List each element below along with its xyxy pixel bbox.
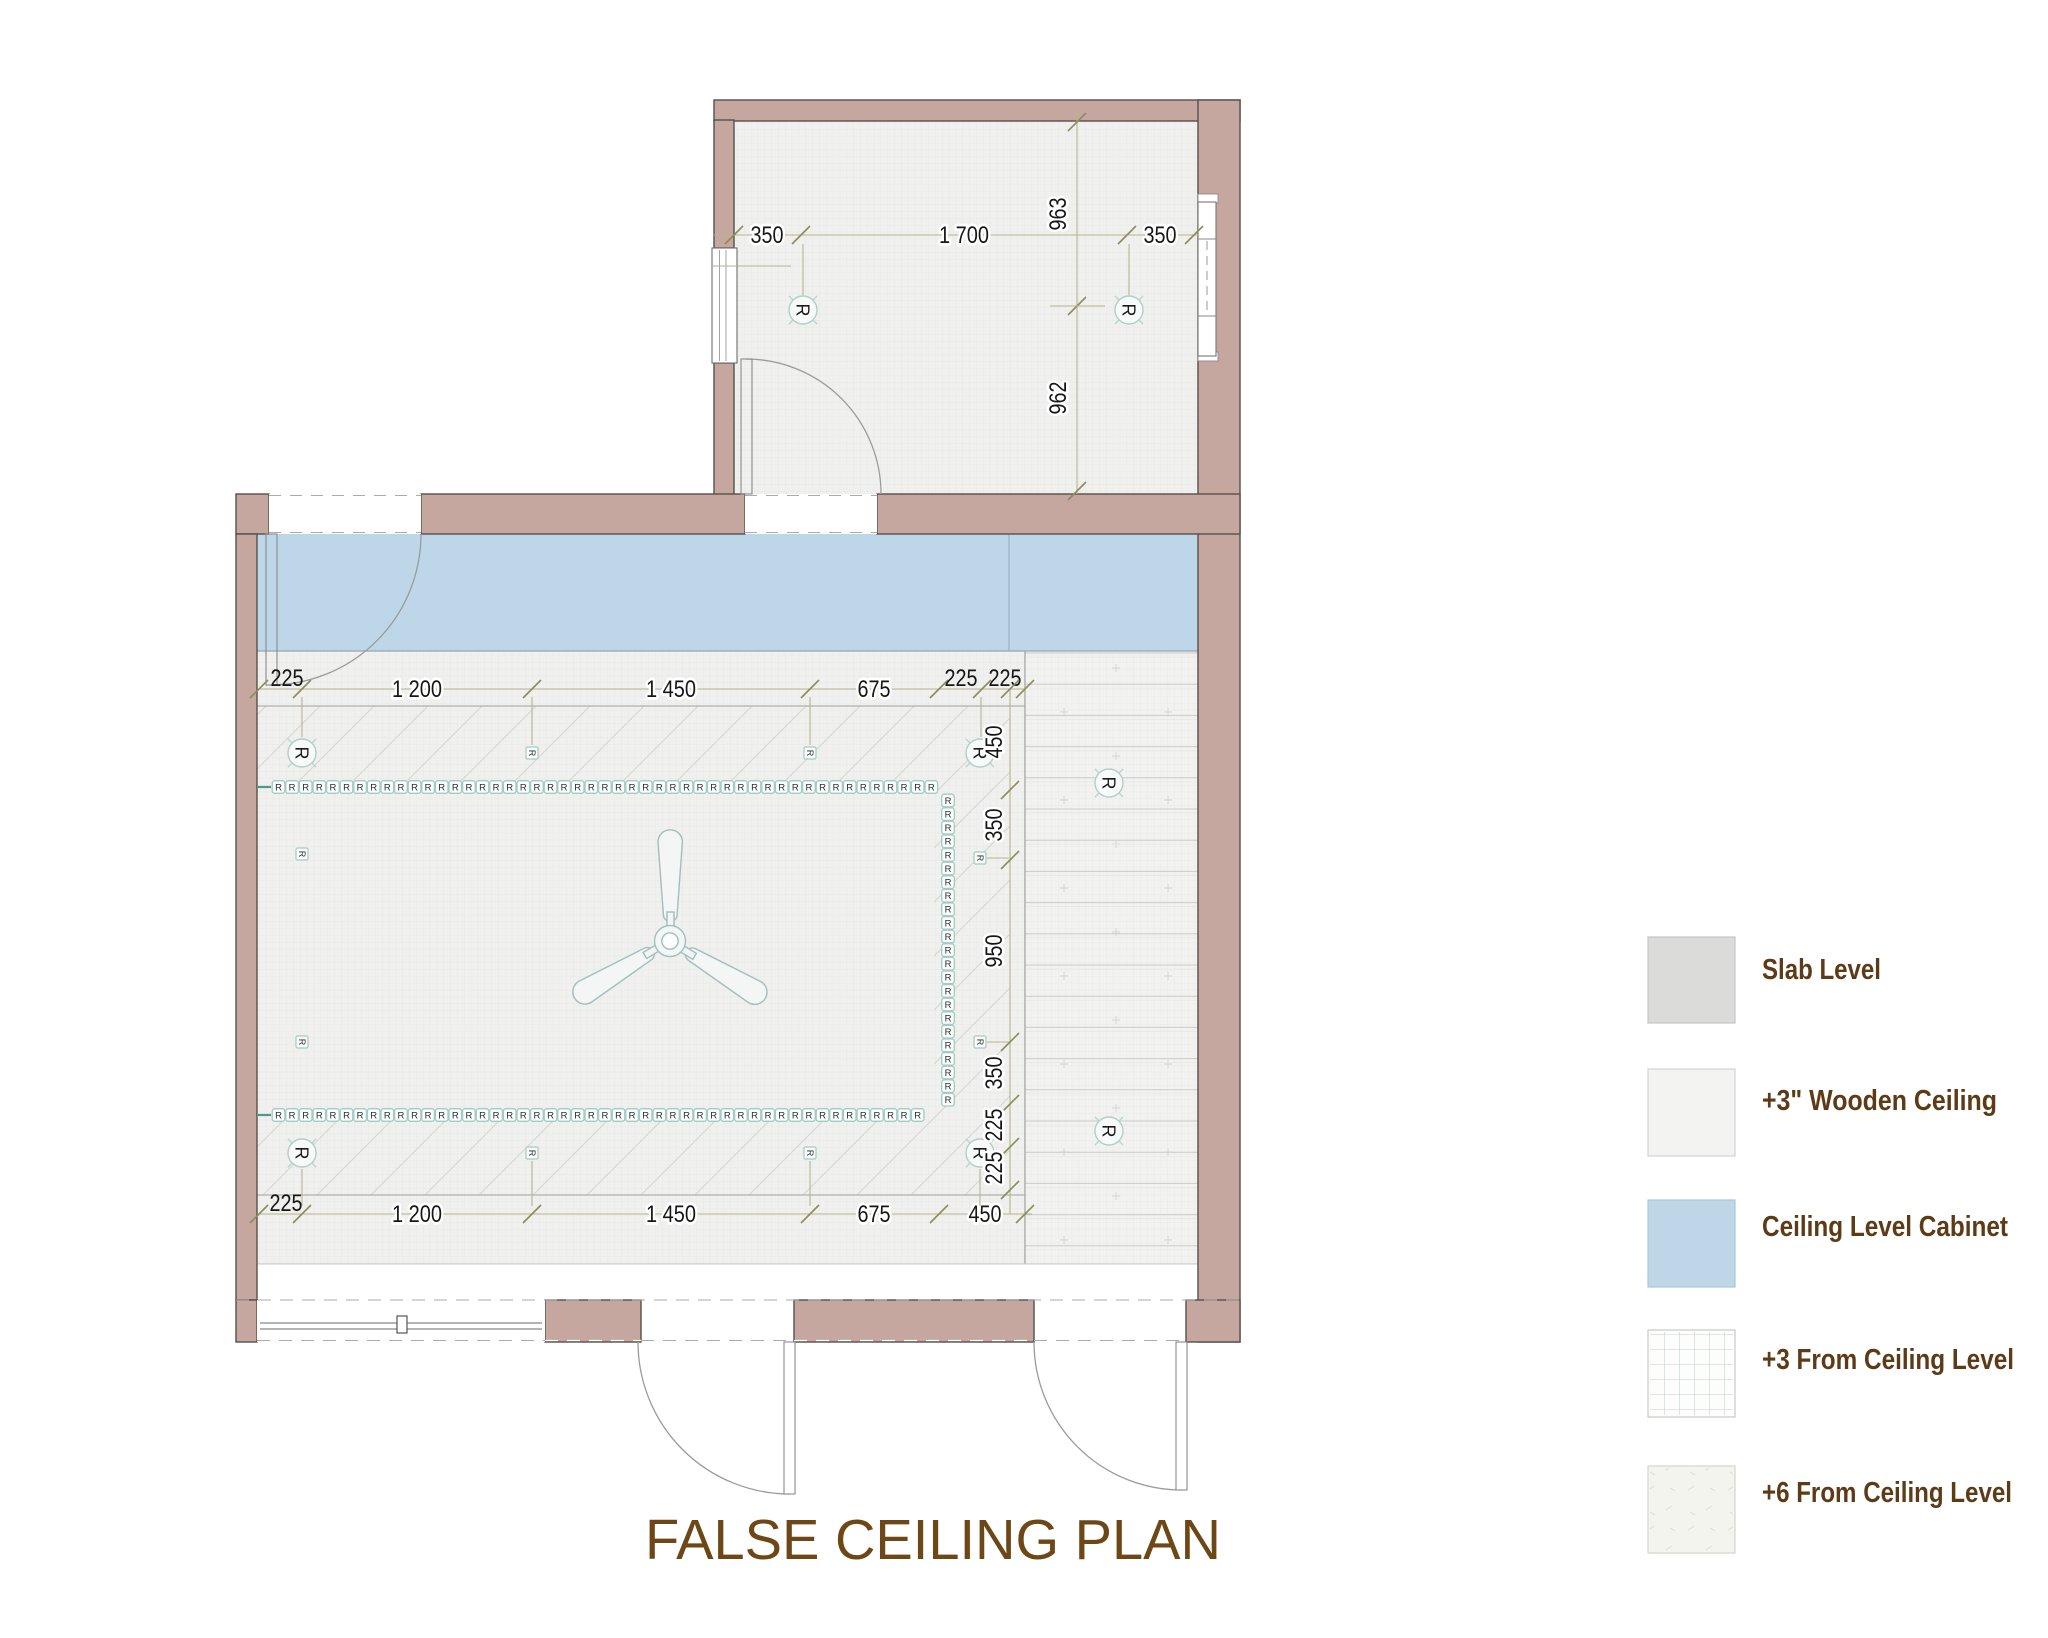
svg-text:R: R: [873, 1110, 880, 1121]
svg-text:R: R: [289, 1110, 296, 1121]
svg-text:Slab Level: Slab Level: [1762, 954, 1881, 986]
svg-text:R: R: [833, 1110, 840, 1121]
svg-text:225: 225: [945, 665, 978, 692]
svg-text:R: R: [574, 782, 581, 793]
svg-text:R: R: [292, 1147, 312, 1160]
svg-text:R: R: [975, 855, 985, 862]
svg-text:225: 225: [270, 1190, 303, 1217]
svg-text:R: R: [438, 782, 445, 793]
svg-text:R: R: [945, 837, 952, 848]
svg-text:R: R: [860, 782, 867, 793]
svg-text:R: R: [527, 1150, 537, 1157]
svg-text:R: R: [1099, 777, 1119, 790]
svg-text:350: 350: [751, 222, 784, 249]
svg-text:R: R: [945, 946, 952, 957]
svg-text:R: R: [384, 1110, 391, 1121]
svg-text:R: R: [945, 1082, 952, 1093]
svg-text:R: R: [527, 750, 537, 757]
svg-text:1 200: 1 200: [392, 1201, 442, 1228]
svg-text:675: 675: [858, 1201, 891, 1228]
svg-text:Ceiling Level Cabinet: Ceiling Level Cabinet: [1762, 1211, 2008, 1243]
svg-text:R: R: [629, 1110, 636, 1121]
svg-text:R: R: [370, 1110, 377, 1121]
svg-text:R: R: [805, 1110, 812, 1121]
svg-text:R: R: [945, 850, 952, 861]
svg-text:R: R: [778, 782, 785, 793]
svg-text:R: R: [1119, 304, 1139, 317]
svg-text:R: R: [425, 1110, 432, 1121]
svg-text:R: R: [642, 782, 649, 793]
svg-text:R: R: [561, 782, 568, 793]
svg-text:R: R: [914, 1110, 921, 1121]
svg-text:R: R: [710, 1110, 717, 1121]
svg-text:R: R: [737, 782, 744, 793]
svg-text:R: R: [846, 1110, 853, 1121]
svg-text:950: 950: [981, 935, 1008, 968]
svg-text:R: R: [846, 782, 853, 793]
svg-text:R: R: [887, 1110, 894, 1121]
svg-text:R: R: [615, 782, 622, 793]
svg-text:R: R: [297, 1039, 307, 1046]
svg-text:225: 225: [981, 1109, 1008, 1142]
svg-text:R: R: [493, 1110, 500, 1121]
svg-text:R: R: [887, 782, 894, 793]
svg-text:R: R: [901, 1110, 908, 1121]
svg-text:1 200: 1 200: [392, 676, 442, 703]
svg-text:R: R: [465, 782, 472, 793]
svg-text:R: R: [697, 1110, 704, 1121]
svg-text:R: R: [329, 782, 336, 793]
svg-text:R: R: [411, 782, 418, 793]
svg-text:R: R: [506, 1110, 513, 1121]
svg-text:R: R: [533, 1110, 540, 1121]
svg-text:R: R: [357, 782, 364, 793]
svg-text:FALSE CEILING PLAN: FALSE CEILING PLAN: [645, 1508, 1221, 1572]
svg-text:R: R: [520, 782, 527, 793]
svg-text:R: R: [533, 782, 540, 793]
svg-text:R: R: [601, 782, 608, 793]
svg-text:R: R: [601, 1110, 608, 1121]
svg-text:350: 350: [1144, 222, 1177, 249]
svg-text:675: 675: [858, 676, 891, 703]
svg-text:R: R: [1099, 1125, 1119, 1138]
svg-text:R: R: [588, 782, 595, 793]
svg-text:R: R: [642, 1110, 649, 1121]
svg-text:R: R: [945, 823, 952, 834]
svg-text:R: R: [945, 796, 952, 807]
svg-text:R: R: [945, 864, 952, 875]
svg-text:R: R: [945, 1041, 952, 1052]
svg-text:R: R: [945, 959, 952, 970]
svg-text:R: R: [357, 1110, 364, 1121]
svg-text:R: R: [275, 782, 282, 793]
svg-text:R: R: [724, 1110, 731, 1121]
svg-text:R: R: [506, 782, 513, 793]
svg-text:R: R: [901, 782, 908, 793]
svg-text:R: R: [697, 782, 704, 793]
svg-text:R: R: [574, 1110, 581, 1121]
svg-text:R: R: [819, 782, 826, 793]
svg-text:R: R: [945, 986, 952, 997]
svg-text:1 450: 1 450: [646, 1201, 696, 1228]
svg-text:R: R: [792, 782, 799, 793]
svg-text:1 450: 1 450: [646, 676, 696, 703]
svg-text:R: R: [316, 782, 323, 793]
svg-text:R: R: [945, 1000, 952, 1011]
svg-text:R: R: [805, 1150, 815, 1157]
svg-text:R: R: [833, 782, 840, 793]
svg-text:R: R: [805, 750, 815, 757]
svg-text:+3 From Ceiling Level: +3 From Ceiling Level: [1762, 1344, 2014, 1376]
svg-text:R: R: [945, 1095, 952, 1106]
svg-text:R: R: [945, 891, 952, 902]
svg-text:R: R: [819, 1110, 826, 1121]
svg-text:+3" Wooden Ceiling: +3" Wooden Ceiling: [1762, 1085, 1997, 1117]
svg-text:R: R: [656, 1110, 663, 1121]
svg-text:R: R: [384, 782, 391, 793]
svg-text:R: R: [710, 782, 717, 793]
svg-text:R: R: [629, 782, 636, 793]
svg-text:R: R: [302, 782, 309, 793]
svg-text:R: R: [656, 782, 663, 793]
svg-text:R: R: [465, 1110, 472, 1121]
svg-text:1 700: 1 700: [939, 222, 989, 249]
svg-text:R: R: [765, 782, 772, 793]
svg-text:R: R: [452, 782, 459, 793]
svg-text:R: R: [945, 878, 952, 889]
svg-text:R: R: [275, 1110, 282, 1121]
svg-text:R: R: [737, 1110, 744, 1121]
svg-text:R: R: [793, 304, 813, 317]
svg-text:R: R: [683, 1110, 690, 1121]
svg-text:R: R: [289, 782, 296, 793]
svg-text:R: R: [765, 1110, 772, 1121]
svg-text:R: R: [297, 851, 307, 858]
svg-text:R: R: [370, 782, 377, 793]
svg-text:R: R: [751, 782, 758, 793]
svg-text:350: 350: [981, 809, 1008, 842]
svg-text:R: R: [302, 1110, 309, 1121]
svg-text:R: R: [343, 782, 350, 793]
svg-text:R: R: [945, 905, 952, 916]
svg-text:R: R: [873, 782, 880, 793]
svg-text:R: R: [945, 1014, 952, 1025]
svg-text:350: 350: [981, 1057, 1008, 1090]
svg-text:225: 225: [271, 665, 304, 692]
svg-text:R: R: [945, 1027, 952, 1038]
svg-text:R: R: [397, 1110, 404, 1121]
svg-text:R: R: [778, 1110, 785, 1121]
svg-text:R: R: [669, 1110, 676, 1121]
svg-text:R: R: [292, 747, 312, 760]
svg-text:R: R: [669, 782, 676, 793]
svg-text:R: R: [397, 782, 404, 793]
svg-text:R: R: [751, 1110, 758, 1121]
svg-text:R: R: [945, 1068, 952, 1079]
svg-text:R: R: [945, 1054, 952, 1065]
svg-text:R: R: [411, 1110, 418, 1121]
svg-text:450: 450: [969, 1201, 1002, 1228]
svg-text:R: R: [928, 782, 935, 793]
svg-text:R: R: [945, 932, 952, 943]
svg-text:R: R: [438, 1110, 445, 1121]
svg-text:R: R: [452, 1110, 459, 1121]
svg-text:R: R: [547, 782, 554, 793]
svg-text:R: R: [329, 1110, 336, 1121]
svg-text:R: R: [479, 782, 486, 793]
svg-text:225: 225: [989, 665, 1022, 692]
svg-text:R: R: [975, 1039, 985, 1046]
svg-text:R: R: [860, 1110, 867, 1121]
svg-text:R: R: [945, 810, 952, 821]
svg-text:R: R: [724, 782, 731, 793]
svg-text:962: 962: [1045, 382, 1072, 415]
svg-text:R: R: [343, 1110, 350, 1121]
svg-text:R: R: [547, 1110, 554, 1121]
svg-text:R: R: [683, 782, 690, 793]
svg-text:R: R: [805, 782, 812, 793]
svg-text:225: 225: [981, 1152, 1008, 1185]
svg-text:+6 From Ceiling Level: +6 From Ceiling Level: [1762, 1477, 2012, 1509]
svg-text:R: R: [615, 1110, 622, 1121]
svg-text:963: 963: [1045, 198, 1072, 231]
svg-text:R: R: [945, 973, 952, 984]
svg-text:R: R: [561, 1110, 568, 1121]
svg-text:R: R: [945, 918, 952, 929]
svg-text:R: R: [425, 782, 432, 793]
svg-text:R: R: [914, 782, 921, 793]
svg-text:R: R: [520, 1110, 527, 1121]
svg-text:450: 450: [981, 726, 1008, 759]
svg-text:R: R: [479, 1110, 486, 1121]
svg-text:R: R: [493, 782, 500, 793]
svg-text:R: R: [316, 1110, 323, 1121]
svg-text:R: R: [588, 1110, 595, 1121]
svg-text:R: R: [792, 1110, 799, 1121]
